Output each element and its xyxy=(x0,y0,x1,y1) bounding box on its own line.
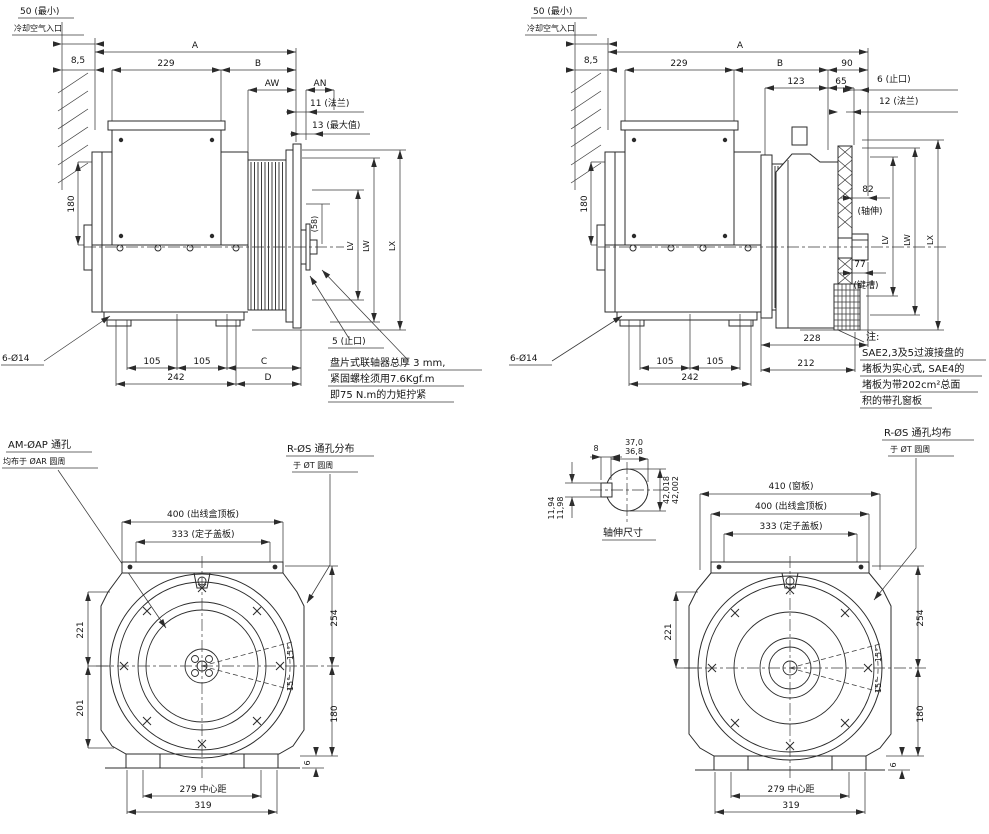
view-side-sae-adapter: 50 (最小) 冷却空气入口 8,5 A 229 B 90 123 65 xyxy=(509,6,986,408)
view-side-disc-coupling: 50 (最小) 冷却空气入口 8,5 A 229 B AW AN 11 xyxy=(1,6,482,402)
machine-body xyxy=(84,121,344,328)
am-holes-line2: 均布于 ØAR 圆周 xyxy=(3,456,65,466)
note-line3: 即75 N.m的力矩拧紧 xyxy=(330,388,426,401)
top-box xyxy=(792,127,807,145)
dim-221: 221 xyxy=(664,623,674,640)
dim-105a: 105 xyxy=(143,357,160,367)
air-inlet-label: 冷却空气入口 xyxy=(527,23,575,33)
terminal-box xyxy=(112,130,221,245)
wall-hatch xyxy=(58,73,88,190)
dim-37-lo: 36,8 xyxy=(625,447,643,456)
bottom-dimensions: 279 中心距 319 xyxy=(715,772,865,815)
dim-410: 410 (窗板) xyxy=(768,480,813,492)
dim-77: 77 xyxy=(854,260,865,270)
dim-90: 90 xyxy=(841,59,853,69)
dim-279-center: 279 中心距 xyxy=(767,783,814,795)
angle-top: 15° xyxy=(874,648,883,662)
view-end-shaft-side: 8 37,0 36,8 42,018 42,002 11,94 11,98 轴伸… xyxy=(547,427,974,815)
dim-key-lo: 11,98 xyxy=(556,497,565,520)
holes-6-d14: 6-Ø14 xyxy=(510,353,538,364)
dim-key-width: 8 xyxy=(593,444,598,453)
dim-82: 82 xyxy=(862,185,873,195)
dim-279-center: 279 中心距 xyxy=(179,783,226,795)
dim-AN: AN xyxy=(314,79,327,89)
terminal-box xyxy=(625,130,734,245)
dim-77-note: (键槽) xyxy=(853,279,878,291)
adapter-plate xyxy=(286,150,293,322)
machine-body xyxy=(597,121,948,330)
end-bracket xyxy=(761,155,772,318)
dim-180: 180 xyxy=(916,705,926,722)
dim-D: D xyxy=(265,373,272,383)
dim-319: 319 xyxy=(194,801,211,811)
fan-grille xyxy=(248,160,286,310)
bottom-dimensions: 105 105 C 242 D xyxy=(116,314,301,387)
dim-319: 319 xyxy=(782,801,799,811)
note-head: 注: xyxy=(866,330,879,343)
dim-12-flange: 12 (法兰) xyxy=(879,95,918,107)
note-line2: 紧固螺栓须用7.6Kgf.m xyxy=(330,372,435,385)
dim-180: 180 xyxy=(330,705,340,722)
note-line1: SAE2,3及5过渡接盘的 xyxy=(862,346,964,359)
terminal-box-cover xyxy=(621,121,738,130)
dim-5-spigot: 5 (止口) xyxy=(332,335,366,347)
dim-LV: LV xyxy=(881,235,890,245)
dim-8-5: 8,5 xyxy=(71,56,85,66)
dim-242: 242 xyxy=(167,373,184,383)
shaft-detail: 8 37,0 36,8 42,018 42,002 11,94 11,98 轴伸… xyxy=(547,438,680,540)
dim-105b: 105 xyxy=(193,357,210,367)
dim-dia-lo: 42,002 xyxy=(671,476,680,504)
cooling-air-inlet-callout: 50 (最小) 冷却空气入口 xyxy=(525,6,617,130)
angle-bottom: 15° xyxy=(286,677,295,691)
spigot-callout: 5 (止口) xyxy=(308,275,384,348)
dim-dia-hi: 42,018 xyxy=(662,476,671,504)
dim-201: 201 xyxy=(76,699,86,716)
dim-400: 400 (出线盒顶板) xyxy=(755,500,827,512)
dim-180: 180 xyxy=(67,195,77,212)
dim-LW: LW xyxy=(362,240,371,252)
dim-AW: AW xyxy=(265,79,280,89)
note-line2: 堵板为实心式, SAE4的 xyxy=(862,362,964,375)
dim-13-max: 13 (最大值) xyxy=(312,119,360,131)
dim-180: 180 xyxy=(580,195,590,212)
dim-221: 221 xyxy=(76,621,86,638)
flange-circles xyxy=(96,556,340,778)
dim-228: 228 xyxy=(803,334,820,344)
dim-229: 229 xyxy=(670,59,687,69)
rs-holes-line1: R-ØS 通孔分布 xyxy=(287,443,355,455)
alternator-outline-drawing: 50 (最小) 冷却空气入口 8,5 A 229 B AW AN 11 xyxy=(0,0,989,834)
rs-holes-callout: R-ØS 通孔均布 于 ØT 圆周 xyxy=(872,427,974,602)
dim-58: (58) xyxy=(310,216,319,232)
dim-400: 400 (出线盒顶板) xyxy=(167,508,239,520)
dim-254: 254 xyxy=(330,609,340,626)
rs-holes-callout: R-ØS 通孔分布 于 ØT 圆周 xyxy=(286,443,374,604)
dim-65: 65 xyxy=(835,77,846,87)
air-min-dim: 50 (最小) xyxy=(20,6,59,17)
drawing-sheet: 50 (最小) 冷却空气入口 8,5 A 229 B AW AN 11 xyxy=(0,0,989,834)
dim-C: C xyxy=(261,357,267,367)
terminal-box-cover xyxy=(108,121,225,130)
dim-11-flange: 11 (法兰) xyxy=(310,97,349,109)
right-dimensions: 254 180 6 xyxy=(872,566,926,779)
dim-A: A xyxy=(737,41,744,51)
dim-8-5: 8,5 xyxy=(584,56,598,66)
left-dimensions: 221 201 xyxy=(76,592,114,748)
mounting-feet xyxy=(105,754,300,768)
angle-bottom: 15° xyxy=(874,679,883,693)
sae-bell-housing xyxy=(776,154,838,328)
dim-212: 212 xyxy=(797,359,814,369)
left-dimensions: 221 xyxy=(664,592,700,668)
dim-37-hi: 37,0 xyxy=(625,438,643,447)
cooling-air-inlet-callout: 50 (最小) 冷却空气入口 xyxy=(12,6,104,130)
wall-hatch xyxy=(571,73,601,190)
mounting-flange xyxy=(293,144,301,328)
dim-254: 254 xyxy=(916,609,926,626)
am-holes-line1: AM-ØAP 通孔 xyxy=(8,439,71,451)
coupling-note: 盘片式联轴器总厚 3 mm, 紧固螺栓须用7.6Kgf.m 即75 N.m的力矩… xyxy=(320,268,482,402)
dim-B: B xyxy=(777,59,783,69)
rs-holes-line2: 于 ØT 圆周 xyxy=(890,444,930,454)
holes-callout: 6-Ø14 xyxy=(1,314,112,365)
dim-242: 242 xyxy=(681,373,698,383)
holes-6-d14: 6-Ø14 xyxy=(2,353,30,364)
dim-82-note: (轴伸) xyxy=(857,205,882,217)
angle-top: 15° xyxy=(286,646,295,660)
dim-123: 123 xyxy=(787,77,804,87)
view-end-coupling-side: AM-ØAP 通孔 均布于 ØAR 圆周 R-ØS 通孔分布 于 ØT 圆周 4… xyxy=(2,439,374,815)
note-line1: 盘片式联轴器总厚 3 mm, xyxy=(330,356,445,369)
dim-6: 6 xyxy=(889,762,898,767)
dim-LW: LW xyxy=(903,234,912,246)
dim-229: 229 xyxy=(157,59,174,69)
am-holes-callout: AM-ØAP 通孔 均布于 ØAR 圆周 xyxy=(2,439,168,630)
rs-holes-line2: 于 ØT 圆周 xyxy=(293,460,333,470)
mounting-feet xyxy=(617,312,757,326)
dim-LX: LX xyxy=(388,241,397,251)
dim-LV: LV xyxy=(346,241,355,251)
flange-circles xyxy=(684,556,926,778)
dim-333: 333 (定子盖板) xyxy=(759,520,822,532)
rs-holes-line1: R-ØS 通孔均布 xyxy=(884,427,952,439)
dim-B: B xyxy=(255,59,261,69)
sae-flange-upper xyxy=(838,146,852,238)
dim-333: 333 (定子盖板) xyxy=(171,528,234,540)
note-line3: 堵板为带202cm²总面 xyxy=(862,378,960,391)
sae-note: 注: SAE2,3及5过渡接盘的 堵板为实心式, SAE4的 堵板为带202cm… xyxy=(838,330,986,408)
air-inlet-label: 冷却空气入口 xyxy=(14,23,62,33)
holes-callout: 6-Ø14 xyxy=(509,314,623,365)
dim-6: 6 xyxy=(303,760,312,765)
air-min-dim: 50 (最小) xyxy=(533,6,572,17)
dim-105b: 105 xyxy=(706,357,723,367)
dim-A: A xyxy=(192,41,199,51)
dim-6-spigot: 6 (止口) xyxy=(877,73,911,85)
note-line4: 积的带孔窗板 xyxy=(862,394,922,407)
mounting-feet xyxy=(104,312,244,326)
dim-LX: LX xyxy=(926,235,935,245)
dim-key-hi: 11,94 xyxy=(547,497,556,520)
shaft-detail-title: 轴伸尺寸 xyxy=(603,526,643,539)
dim-105a: 105 xyxy=(656,357,673,367)
top-cover-plate xyxy=(122,562,283,573)
